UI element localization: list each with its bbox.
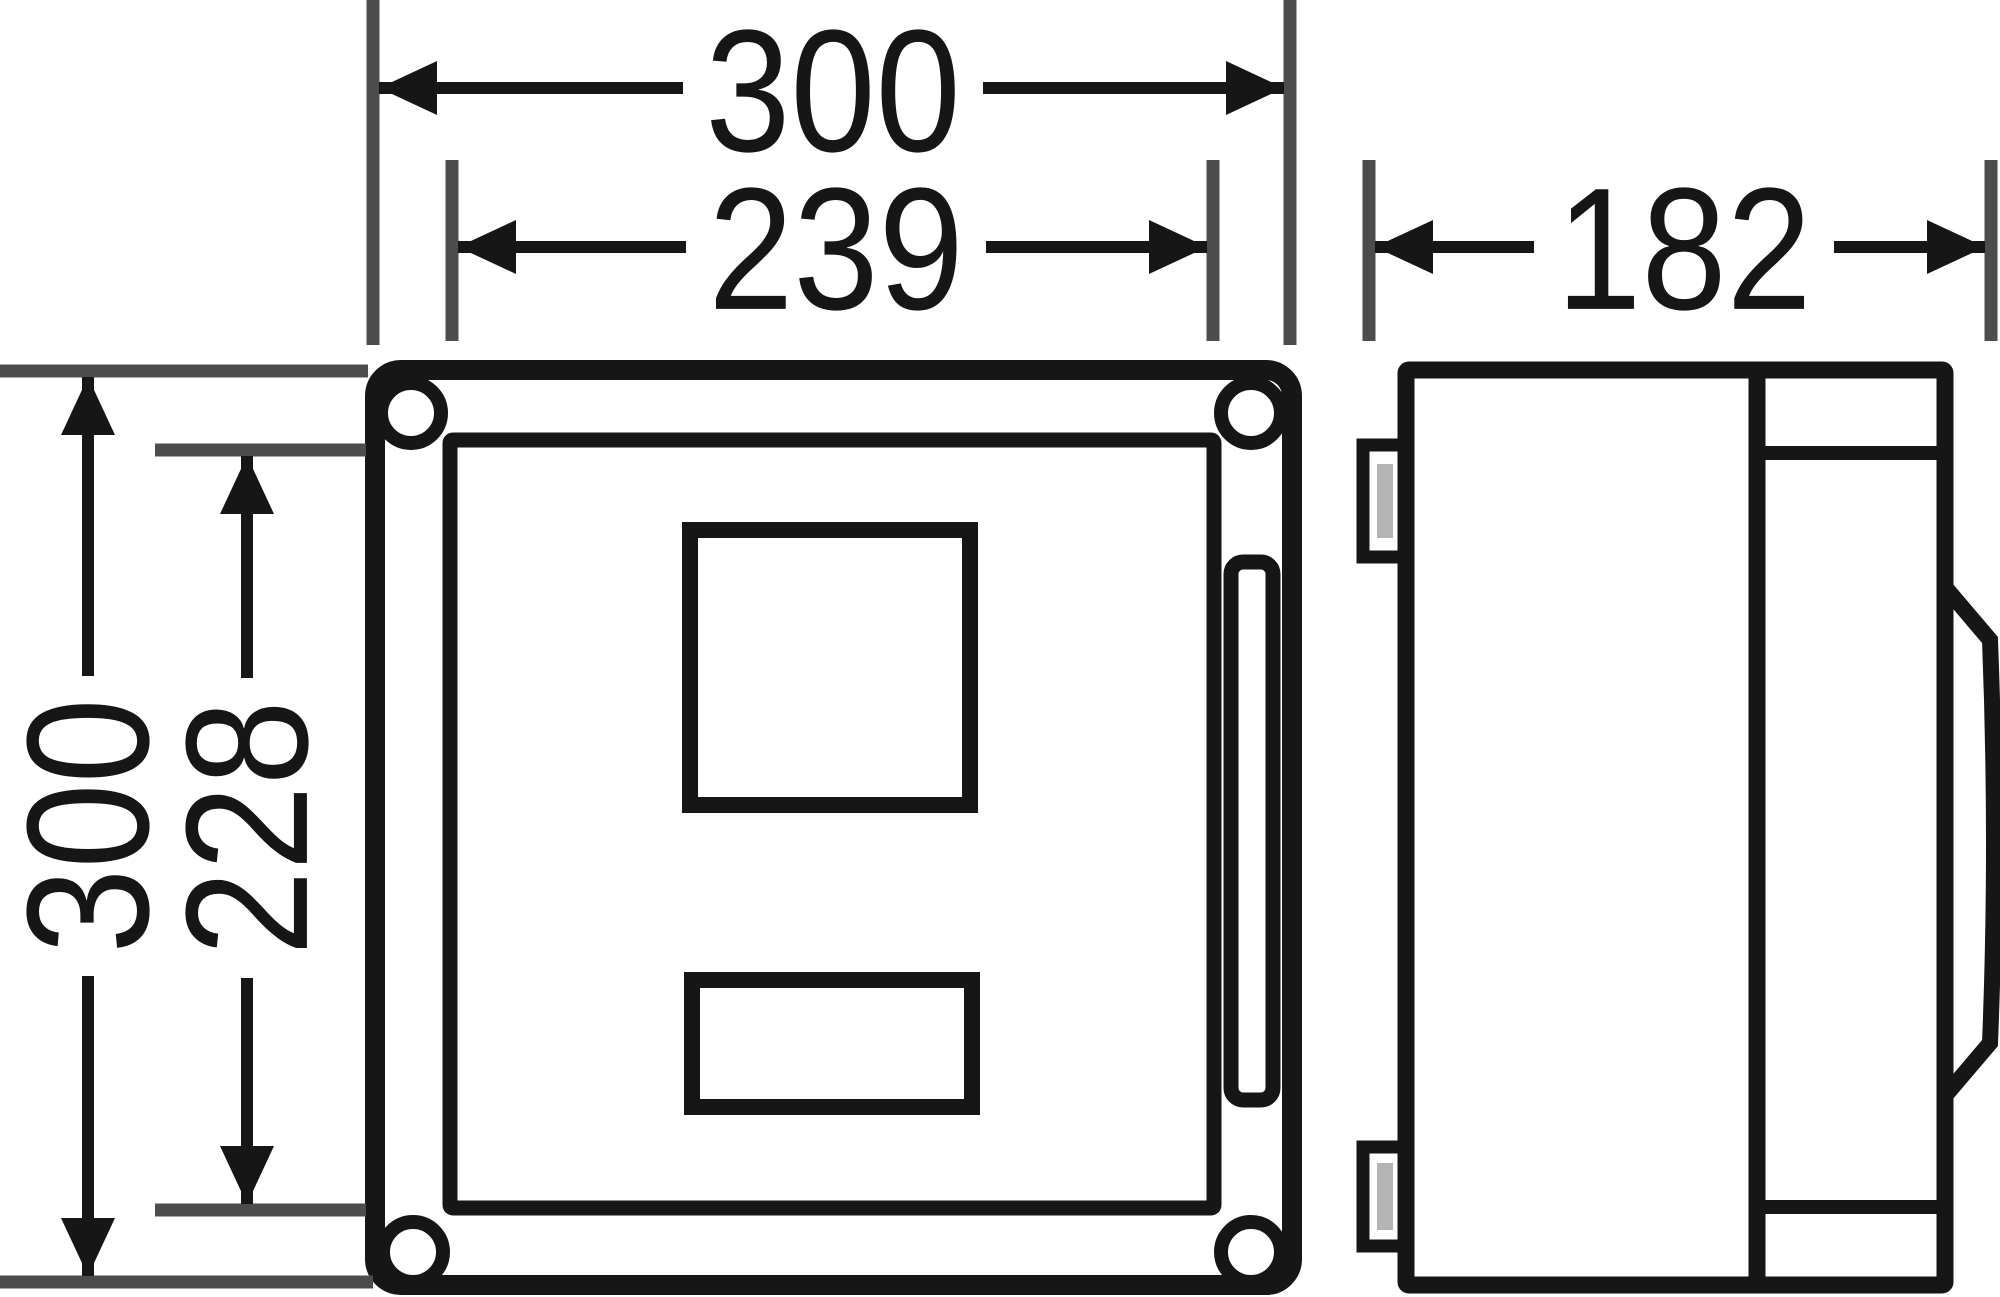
dim-label-depth: 182	[1556, 152, 1811, 346]
arrowhead-down-icon	[61, 1218, 115, 1276]
corner-screw-top-right	[1221, 383, 1281, 443]
technical-drawing-canvas: 300 239 182 300 228	[0, 0, 2000, 1297]
arrowhead-up-icon	[220, 456, 274, 514]
hinge-tab-top-slit	[1377, 464, 1393, 538]
arrowhead-left-icon	[458, 220, 516, 274]
arrowhead-left-icon	[379, 61, 437, 115]
hinge-tab-bottom-slit	[1377, 1163, 1393, 1230]
dim-label-inner-width: 239	[708, 152, 963, 346]
arrowhead-up-icon	[61, 377, 115, 435]
drawing-page: 300 239 182 300 228	[0, 0, 2000, 1297]
arrowhead-right-icon	[1927, 220, 1985, 274]
corner-screw-bottom-left	[383, 1222, 443, 1282]
front-view	[375, 370, 1292, 1285]
arrowhead-right-icon	[1149, 220, 1207, 274]
corner-screw-top-left	[381, 383, 441, 443]
side-view	[1363, 370, 1994, 1285]
cutout-lower	[692, 980, 972, 1107]
arrowhead-left-icon	[1375, 220, 1433, 274]
cutout-upper	[690, 530, 970, 805]
corner-screw-bottom-right	[1221, 1222, 1281, 1282]
arrowhead-down-icon	[220, 1146, 274, 1204]
side-body-outline	[1406, 370, 1945, 1285]
arrowhead-right-icon	[1226, 61, 1284, 115]
latch-slot	[1231, 562, 1273, 1100]
dim-label-inner-height: 228	[150, 700, 344, 955]
